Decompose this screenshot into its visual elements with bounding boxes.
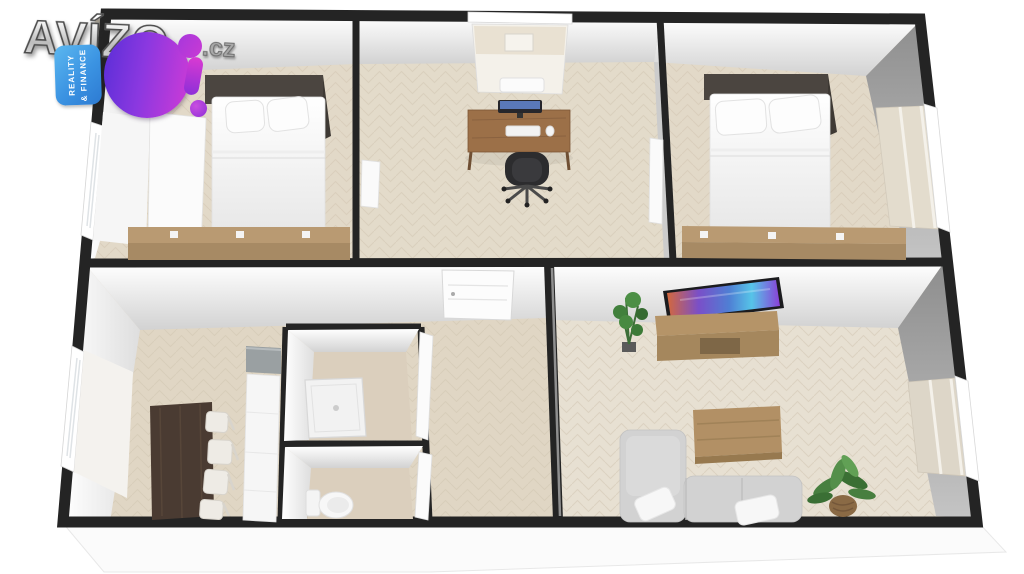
window-sill-object bbox=[505, 34, 533, 51]
pillow bbox=[225, 100, 265, 134]
bedroom1-window-reveal bbox=[93, 112, 150, 246]
tv-stand bbox=[655, 311, 779, 361]
door-handle bbox=[451, 292, 455, 296]
double-bed bbox=[710, 94, 830, 234]
wc-room bbox=[282, 446, 423, 519]
floorplan-render bbox=[0, 0, 1024, 574]
living-right-window bbox=[908, 376, 979, 481]
radiator bbox=[500, 78, 544, 92]
pillow bbox=[768, 94, 822, 134]
toilet bbox=[306, 490, 353, 518]
coffee-table bbox=[693, 406, 782, 464]
pillow bbox=[715, 98, 767, 135]
bedroom2-open-door-leaf bbox=[649, 138, 663, 224]
office-open-door-leaf bbox=[361, 160, 380, 208]
bathroom-shower-room bbox=[284, 329, 419, 441]
keyboard bbox=[506, 126, 540, 136]
white-counter-run bbox=[243, 374, 280, 522]
shower-tray bbox=[305, 378, 366, 438]
floorplan-screenshot: AVÍZO .cz REALITY & FINANCE bbox=[0, 0, 1024, 574]
wood-sideboard bbox=[682, 226, 906, 260]
office-chair bbox=[502, 152, 553, 208]
wood-sideboard bbox=[128, 227, 350, 260]
gray-counter bbox=[246, 346, 281, 374]
double-bed bbox=[212, 96, 325, 235]
entrance-door bbox=[442, 270, 514, 320]
kitchen-window-reveal bbox=[74, 350, 133, 498]
mouse bbox=[546, 126, 554, 136]
pillow bbox=[266, 96, 310, 133]
divider-wall bbox=[85, 262, 947, 263]
